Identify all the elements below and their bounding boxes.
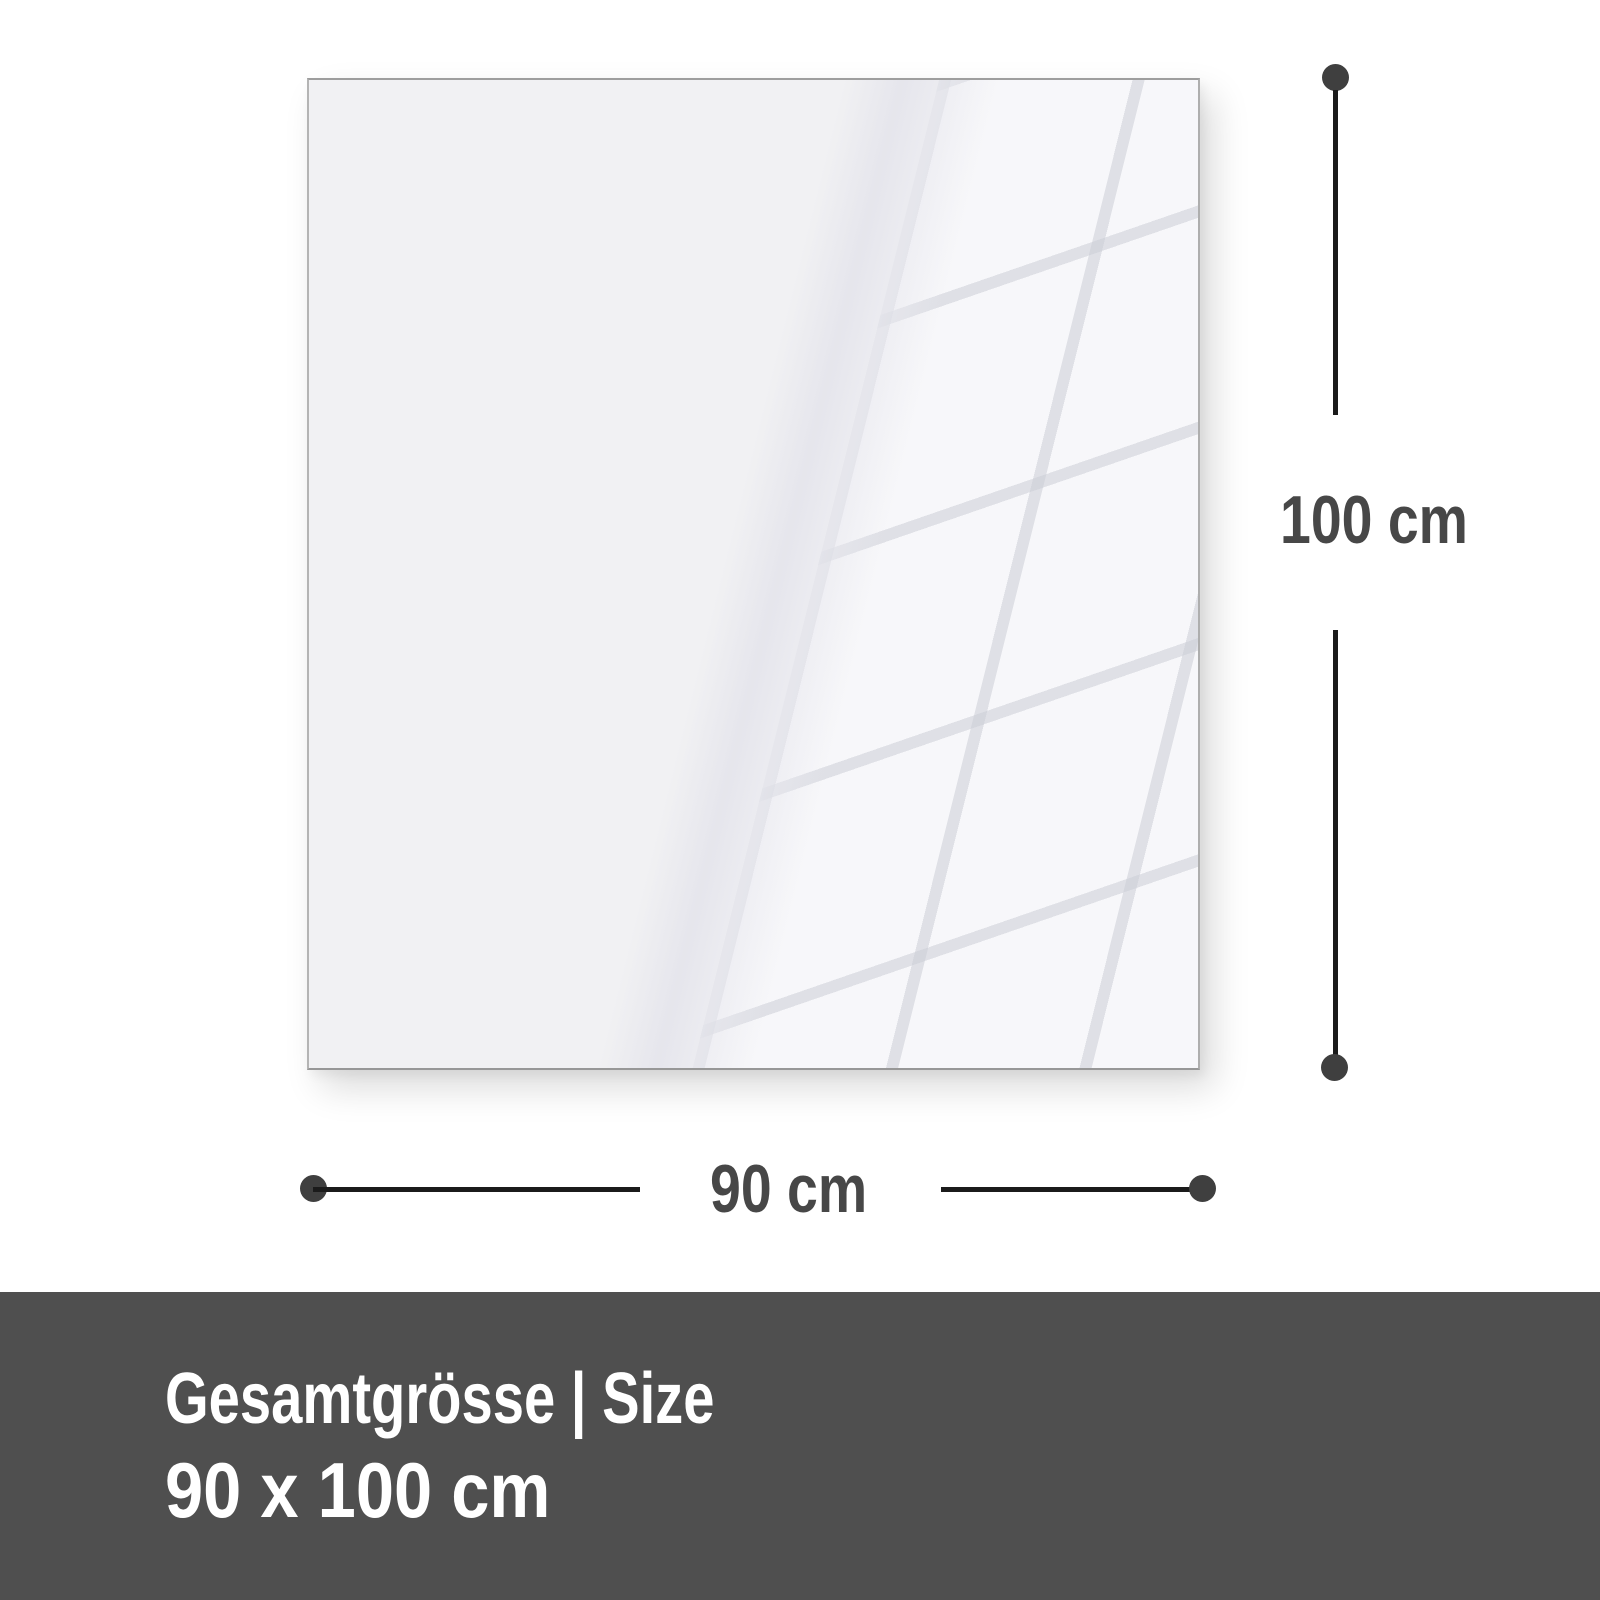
width-dimension-right-dot	[1189, 1175, 1216, 1202]
glass-panel	[307, 78, 1200, 1070]
height-dimension-lower-segment	[1333, 630, 1338, 1055]
width-dimension-left-segment	[313, 1187, 640, 1192]
height-dimension-upper-segment	[1333, 90, 1338, 415]
footer-size-value: 90 x 100 cm	[165, 1451, 550, 1529]
width-dimension-label: 90 cm	[710, 1155, 867, 1223]
footer-size-title: Gesamtgrösse | Size	[165, 1363, 714, 1435]
height-dimension-label: 100 cm	[1280, 486, 1468, 554]
height-dimension-bottom-dot	[1321, 1054, 1348, 1081]
product-size-diagram: 100 cm 90 cm Gesamtgrösse | Size 90 x 10…	[0, 0, 1600, 1600]
size-footer: Gesamtgrösse | Size 90 x 100 cm	[0, 1292, 1600, 1600]
height-dimension-top-dot	[1322, 64, 1349, 91]
width-dimension-right-segment	[941, 1187, 1203, 1192]
